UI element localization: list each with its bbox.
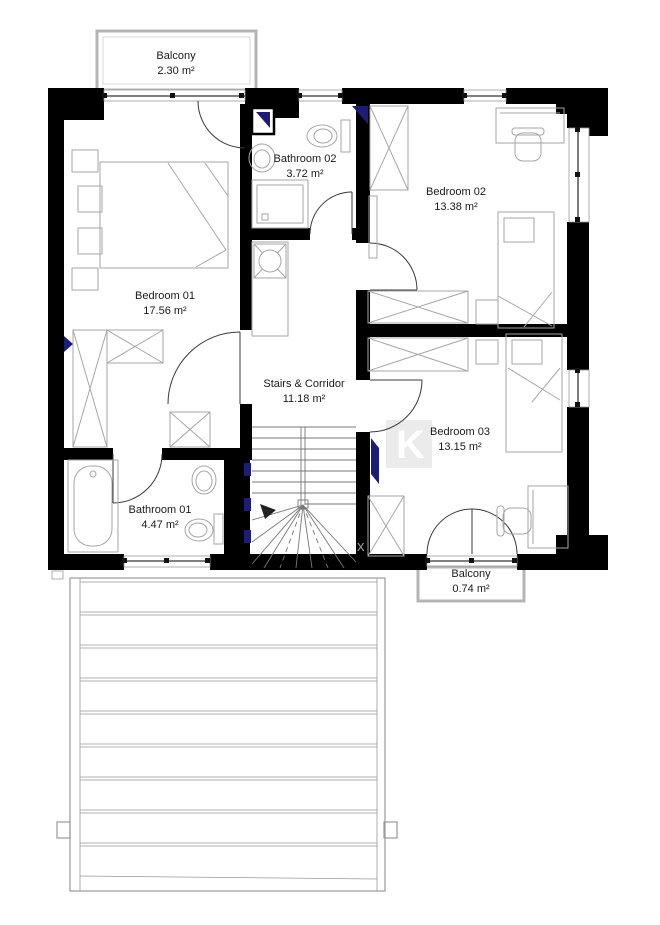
room-name: Bedroom 02 [426, 185, 486, 200]
nightstand-icon [72, 150, 98, 172]
pillow-icon [78, 228, 102, 254]
vent-triangle-left-wall [64, 336, 73, 352]
room-name: Bedroom 03 [430, 425, 490, 440]
duct-mark-shaft-2 [244, 498, 251, 511]
room-name: Balcony [156, 49, 195, 64]
wardrobe-icon [370, 106, 408, 190]
window-bedroom-02-right [569, 127, 589, 222]
door-arc-balcony-top [198, 101, 245, 148]
window-balcony-top [102, 90, 245, 101]
window-bedroom-02-top [462, 90, 507, 101]
washer-icon [254, 244, 286, 278]
room-label-bathroom-01: Bathroom 01 4.47 m² [129, 503, 192, 533]
nightstand-icon [476, 300, 498, 324]
room-name: Balcony [451, 567, 490, 582]
window-bathroom-02 [297, 90, 343, 101]
chair-icon [512, 128, 544, 161]
laundry-counter [252, 242, 288, 336]
duct-mark-shaft-3 [244, 530, 251, 543]
room-label-balcony-bottom: Balcony 0.74 m² [451, 567, 490, 597]
room-label-balcony-top: Balcony 2.30 m² [156, 49, 195, 79]
room-area: 0.74 m² [451, 582, 490, 597]
bedroom-02-furniture [368, 106, 564, 328]
room-name: Bathroom 02 [274, 152, 337, 167]
wardrobe-icon [368, 496, 404, 556]
pillow-icon [78, 186, 102, 212]
wardrobe-icon [368, 338, 468, 371]
room-name: Stairs & Corridor [263, 377, 344, 392]
room-label-bedroom-03: Bedroom 03 13.15 m² [430, 425, 490, 455]
room-area: 11.18 m² [263, 392, 344, 407]
room-area: 3.72 m² [274, 167, 337, 182]
svg-text:x: x [357, 538, 365, 555]
room-area: 13.38 m² [426, 200, 486, 215]
room-area: 2.30 m² [156, 64, 195, 79]
bathtub-icon [68, 460, 118, 552]
room-name: Bedroom 01 [135, 289, 195, 304]
room-label-bedroom-02: Bedroom 02 13.38 m² [426, 185, 486, 215]
terrace-pergola [52, 571, 397, 891]
shower-icon [252, 180, 308, 228]
room-area: 13.15 m² [430, 440, 490, 455]
room-label-bathroom-02: Bathroom 02 3.72 m² [274, 152, 337, 182]
room-name: Bathroom 01 [129, 503, 192, 518]
window-balcony-door-sill [425, 556, 517, 566]
room-area: 17.56 m² [135, 304, 195, 319]
door-bathroom-01 [113, 454, 162, 503]
wardrobe-icon [107, 330, 163, 363]
single-bed-icon [498, 212, 554, 328]
terrace-post-right [384, 822, 397, 838]
wardrobe-icon [170, 412, 210, 447]
nightstand-icon [72, 268, 98, 290]
terrace-post-left [57, 822, 70, 838]
sink-icon [192, 466, 216, 494]
floor-plan: K x [0, 0, 660, 925]
single-bed-icon [506, 334, 562, 452]
sink-icon [249, 144, 275, 172]
door-bedroom-01 [168, 332, 240, 404]
toilet-icon [307, 120, 350, 152]
nightstand-icon [476, 340, 498, 364]
svg-text:K: K [396, 423, 425, 467]
double-bed-icon [100, 162, 228, 268]
desk-icon [496, 108, 564, 143]
duct-mark-shaft-1 [244, 463, 251, 476]
duct-mark-bedroom03 [371, 438, 379, 484]
vent-box-outline [252, 108, 274, 134]
room-area: 4.47 m² [129, 518, 192, 533]
room-label-bedroom-01: Bedroom 01 17.56 m² [135, 289, 195, 319]
room-label-stairs-corridor: Stairs & Corridor 11.18 m² [263, 377, 344, 407]
wardrobe-icon [73, 330, 107, 447]
window-bedroom-03-right [569, 368, 589, 407]
window-bathroom-01 [122, 556, 210, 567]
door-bathroom-02 [310, 192, 352, 234]
wardrobe-icon [368, 291, 468, 323]
stairs-icon [252, 427, 356, 568]
mirror-icon [369, 196, 377, 258]
